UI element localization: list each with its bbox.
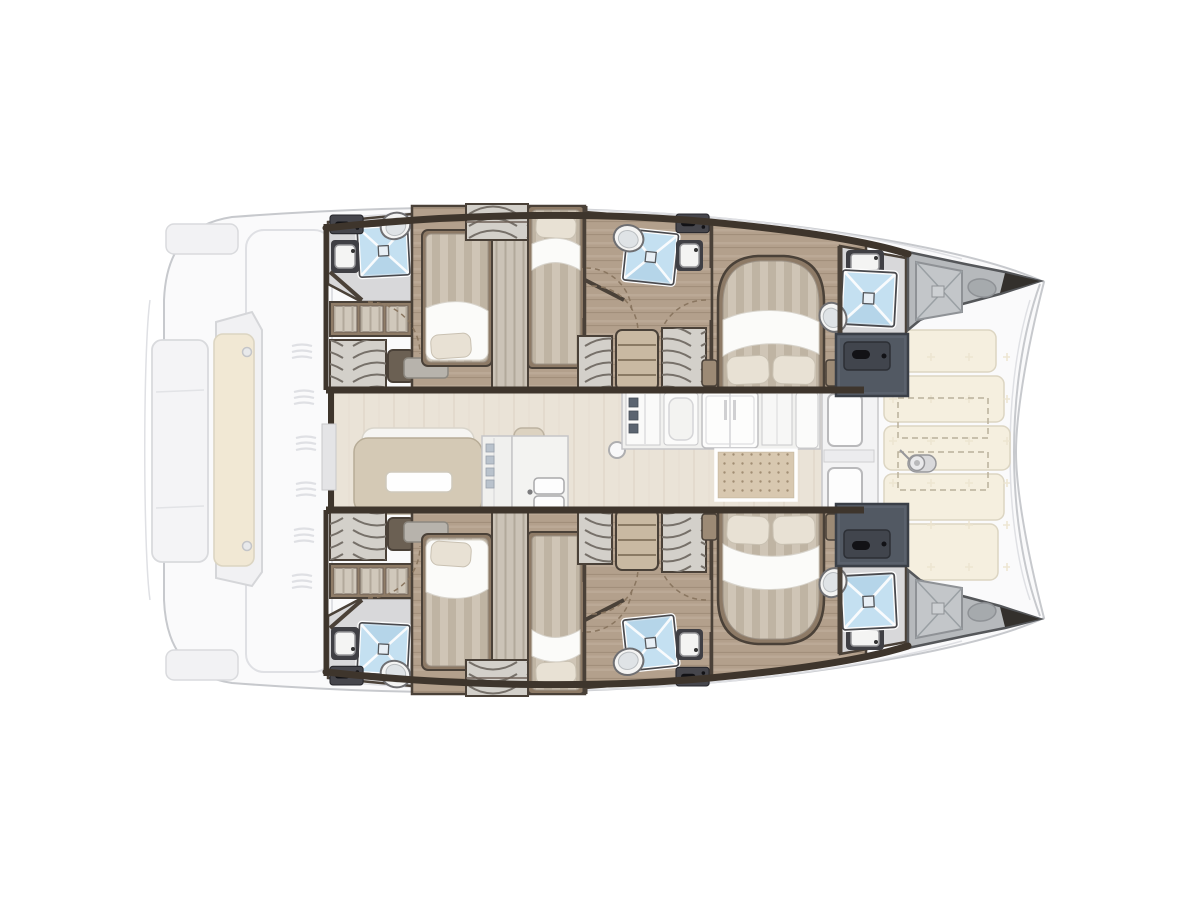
refrigerator: [702, 392, 758, 448]
lounge-sofa: [354, 428, 482, 514]
vanity-sink: [331, 240, 359, 273]
bench-cushion: [214, 334, 254, 566]
galley-floor-mat: [716, 450, 796, 500]
pillow: [430, 333, 472, 360]
drawer-unit: [616, 330, 658, 390]
transom-step-port: [166, 224, 238, 254]
foredeck-door-wall: [822, 388, 878, 520]
floor-plan-svg: [0, 0, 1200, 900]
transom-step-starboard: [166, 650, 238, 680]
single-bed: [528, 206, 584, 368]
cocktail-table: [386, 472, 452, 492]
overhead-shelf: [466, 204, 528, 240]
side-locker-pod: [152, 340, 208, 562]
double-bed: [422, 230, 492, 366]
sink-basin: [534, 478, 564, 494]
saloon: [322, 388, 878, 520]
catamaran-floor-plan: [0, 0, 1200, 900]
vanity-sink: [676, 240, 703, 271]
pillow: [773, 355, 816, 384]
foredeck-door-leaf[interactable]: [828, 394, 862, 446]
aft-cabin: [404, 204, 585, 390]
cockpit-door-threshold[interactable]: [322, 424, 336, 490]
bedside-table: [702, 360, 717, 386]
island-double-bed: [718, 256, 824, 390]
galley-counter-row: [622, 389, 820, 449]
cockpit-bench: [214, 312, 262, 586]
galley-sink-counter: [512, 436, 568, 514]
galley-cabinet: [482, 436, 512, 514]
mid-head-and-corridor: [578, 212, 712, 390]
pillow: [726, 355, 769, 385]
